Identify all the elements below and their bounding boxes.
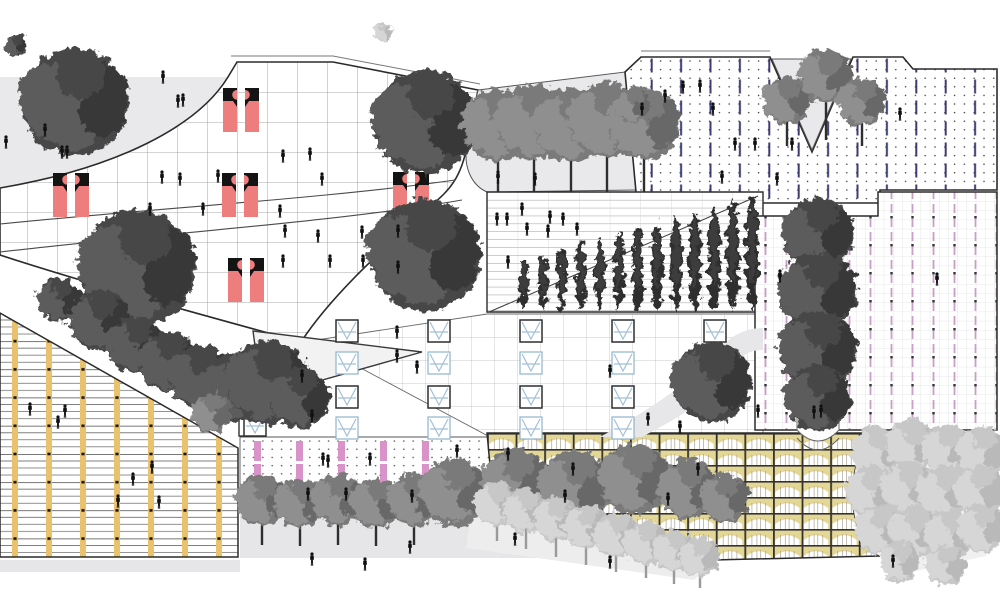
skylight [612, 352, 634, 374]
cypress-tree [595, 237, 605, 310]
skylight [612, 320, 634, 342]
cypress-tree [538, 253, 547, 310]
cypress-tree [576, 243, 586, 311]
planter-bar [338, 441, 345, 461]
cypress-tree [557, 248, 567, 310]
louver-base-strip [0, 560, 240, 572]
cypress-tree [614, 232, 625, 310]
cypress-tree [708, 206, 720, 310]
cypress-tree [689, 212, 701, 311]
site-plan-svg [0, 0, 1000, 600]
person-figure [310, 552, 314, 565]
tree [374, 23, 392, 41]
skylight [336, 352, 358, 374]
skylight [612, 417, 634, 439]
skylight [336, 386, 358, 408]
skylight [520, 352, 542, 374]
person-figure [363, 557, 367, 570]
skylight [336, 417, 358, 439]
planter-bar [422, 441, 429, 461]
cypress-tree [746, 196, 759, 310]
skylight [428, 352, 450, 374]
zone-cypress-terrace [487, 192, 763, 312]
cypress-tree [520, 258, 529, 310]
skylight [520, 417, 542, 439]
skylight [428, 386, 450, 408]
skylight [704, 320, 726, 342]
skylight [520, 320, 542, 342]
skylight [612, 386, 634, 408]
cypress-tree [727, 201, 740, 310]
tree [679, 537, 720, 588]
planter-bar [296, 441, 303, 461]
cypress-tree [633, 227, 644, 310]
skylight [336, 320, 358, 342]
tree [4, 35, 27, 57]
planter-bar [254, 441, 261, 461]
cypress-tree [651, 222, 662, 310]
skylight [428, 320, 450, 342]
skylight [428, 417, 450, 439]
planter-bar [380, 441, 387, 461]
skylight [520, 386, 542, 408]
site-plan [0, 0, 1000, 600]
cypress-tree [670, 217, 682, 310]
